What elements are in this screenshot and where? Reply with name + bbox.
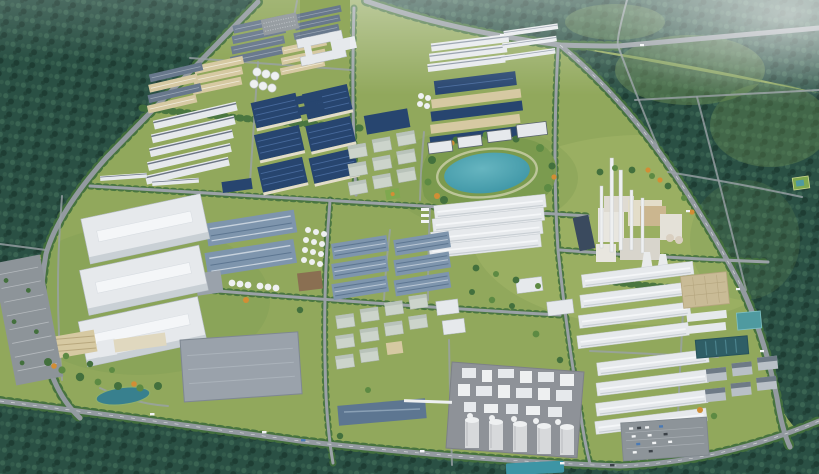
brown-gable-house [297,271,323,292]
truck-dock [421,208,429,223]
sports-court [792,176,810,190]
storage-sphere [666,234,674,242]
tan-workshop [386,341,404,355]
render-canvas [0,0,819,474]
storage-sphere [675,236,683,244]
southeast-parking-lot [621,417,709,461]
industrial-park-aerial-render [0,0,819,474]
treatment-pools [736,311,761,330]
gray-flat-warehouse [180,332,302,402]
haze-top-left [0,0,300,60]
